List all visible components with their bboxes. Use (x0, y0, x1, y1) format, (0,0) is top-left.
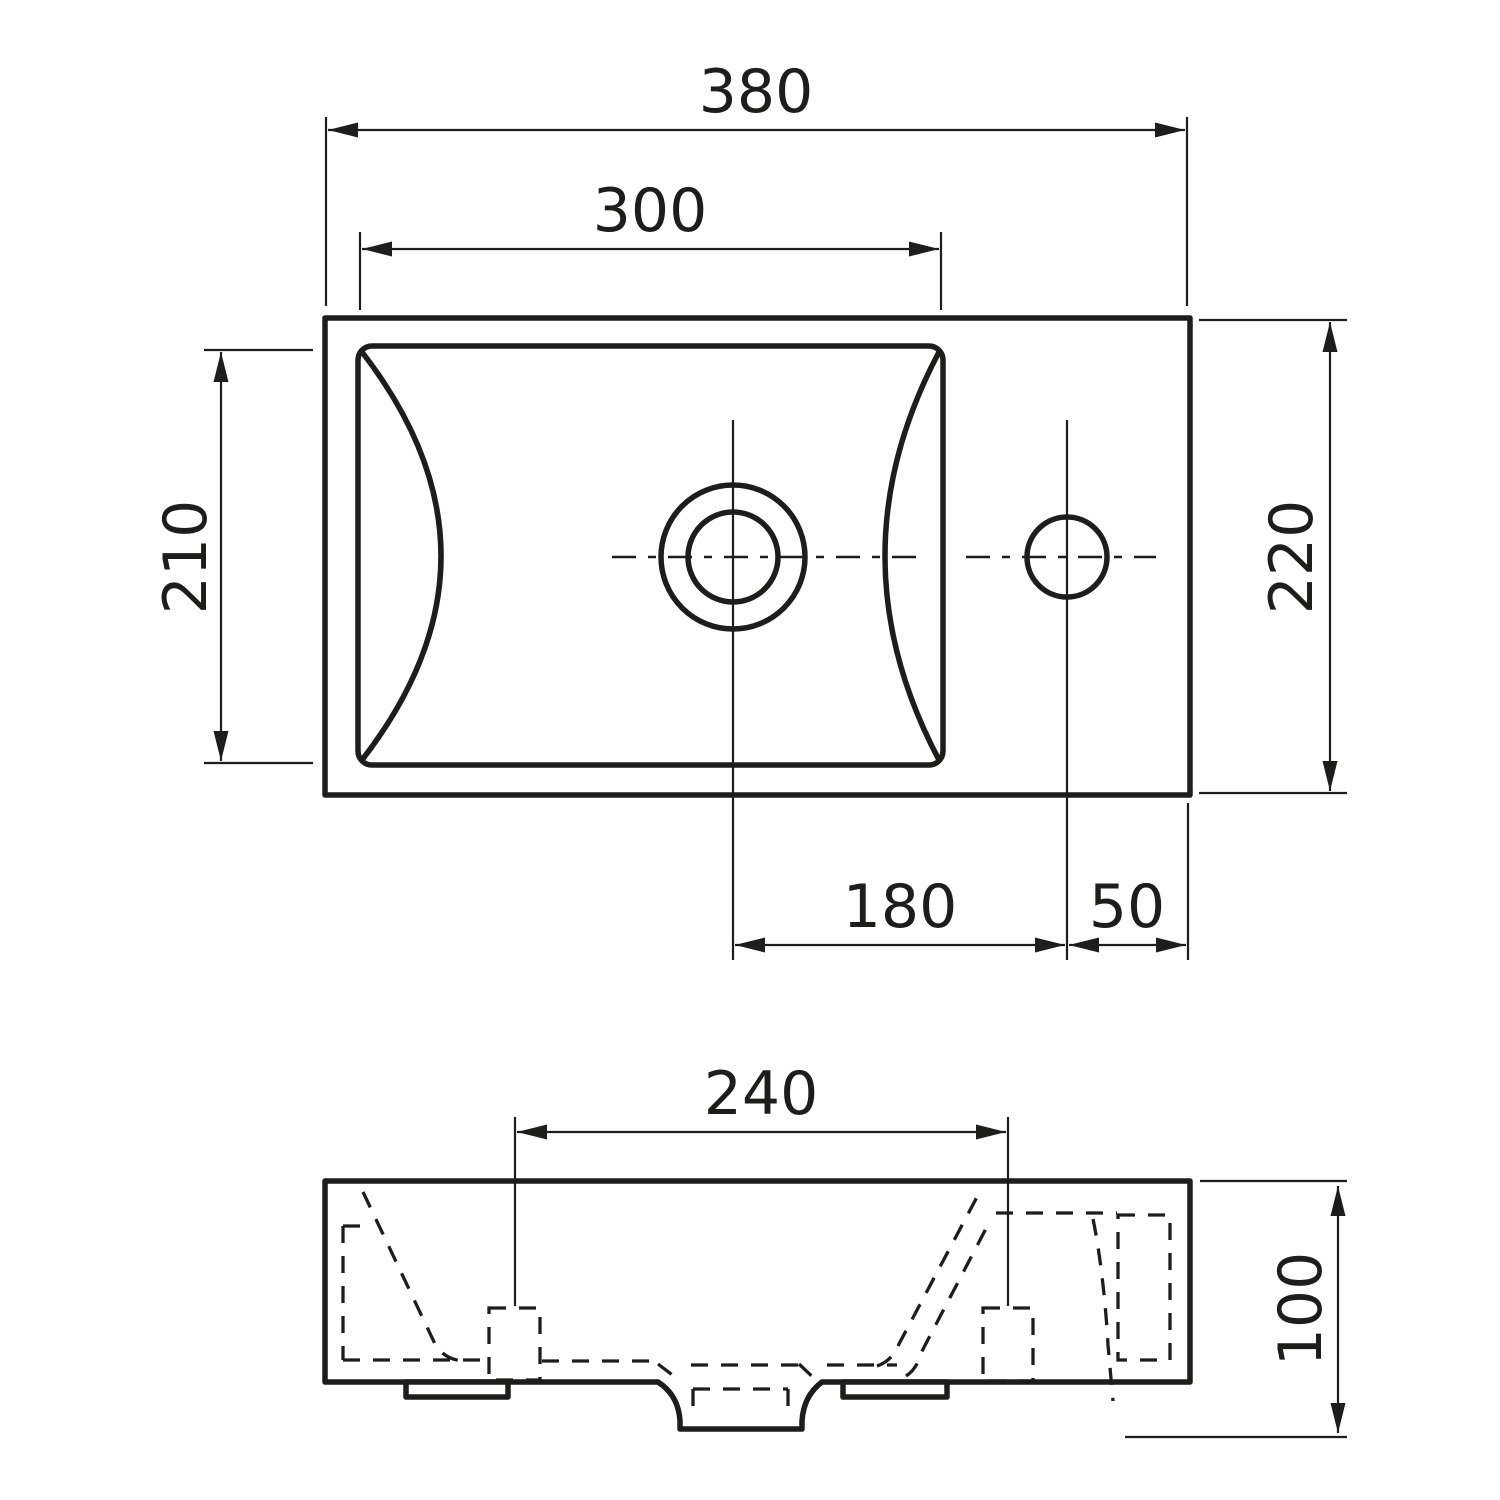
dimension-basin-depth: 210 (151, 350, 313, 763)
arrowhead-top (214, 352, 229, 382)
arrowhead-right (1035, 938, 1065, 953)
arrowhead-right (909, 242, 939, 257)
right-foot-pad (843, 1382, 947, 1397)
technical-drawing-page: 380 300 210 220 180 50 (0, 0, 1500, 1500)
dimension-basin-width: 300 (360, 176, 941, 310)
arrowhead-right (1155, 123, 1185, 138)
arrowhead-left (362, 242, 392, 257)
washbasin-technical-drawing: 380 300 210 220 180 50 (0, 0, 1500, 1500)
dimension-overall-width: 380 (326, 57, 1187, 306)
arrowhead-top (1323, 322, 1338, 352)
dimension-label: 50 (1089, 872, 1165, 942)
dimension-label: 220 (1257, 500, 1327, 615)
left-foot-pad (406, 1382, 508, 1397)
top-view (325, 318, 1190, 960)
dimension-overall-depth: 220 (1199, 320, 1347, 793)
dimension-label: 380 (699, 57, 814, 127)
dimension-label: 240 (704, 1059, 819, 1129)
dimension-label: 100 (1266, 1252, 1336, 1367)
dimension-label: 210 (151, 500, 221, 615)
arrowhead-top (1331, 1186, 1346, 1216)
dimension-drain-to-tap: 180 (735, 872, 1065, 953)
arrowhead-bottom (1323, 761, 1338, 791)
arrowhead-bottom (214, 731, 229, 761)
arrowhead-left (735, 938, 765, 953)
dimension-tap-to-edge: 50 (1069, 803, 1188, 960)
front-view (325, 1181, 1190, 1429)
arrowhead-right (976, 1125, 1006, 1140)
arrowhead-bottom (1331, 1403, 1346, 1433)
dimension-label: 300 (593, 176, 708, 246)
arrowhead-left (517, 1125, 547, 1140)
dimension-label: 180 (843, 872, 958, 942)
arrowhead-left (328, 123, 358, 138)
